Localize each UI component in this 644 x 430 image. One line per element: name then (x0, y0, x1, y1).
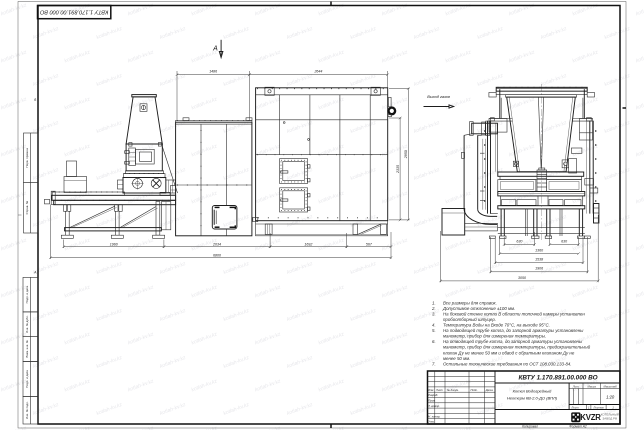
svg-text:4.: 4. (432, 323, 436, 328)
svg-text:пробоотборный штуцер.: пробоотборный штуцер. (443, 317, 496, 322)
svg-text:КВТУ 1.170.891.00.000 ВО: КВТУ 1.170.891.00.000 ВО (518, 375, 597, 382)
svg-text:Справ. №: Справ. № (25, 200, 29, 214)
svg-text:Утв.: Утв. (428, 420, 434, 424)
svg-text:Пров.: Пров. (428, 399, 435, 403)
svg-text:На подводящей трубе котла, до: На подводящей трубе котла, до запорной а… (443, 328, 584, 333)
svg-text:1360: 1360 (535, 249, 543, 253)
svg-text:А: А (212, 46, 218, 53)
svg-text:№ докум.: № докум. (447, 388, 459, 392)
svg-text:На боковой стенке котла В обла: На боковой стенке котла В области топочн… (443, 311, 585, 316)
svg-text:2644: 2644 (313, 70, 322, 74)
svg-text:2.: 2. (431, 306, 436, 311)
svg-text:1960: 1960 (110, 243, 118, 247)
svg-text:3050: 3050 (518, 276, 526, 280)
svg-text:Неотерм КВ-2.0-ДО (ВПЛ): Неотерм КВ-2.0-ДО (ВПЛ) (507, 396, 558, 401)
svg-text:ЗАВОД РФ: ЗАВОД РФ (603, 417, 618, 421)
svg-text:Остальные технические требован: Остальные технические требования по ОСТ … (443, 361, 572, 366)
svg-text:1.: 1. (432, 300, 436, 305)
svg-text:2034: 2034 (212, 243, 221, 247)
svg-text:1692: 1692 (304, 243, 312, 247)
svg-text:Все размеры для справок.: Все размеры для справок. (443, 300, 497, 305)
svg-text:Подп.: Подп. (471, 388, 478, 392)
svg-text:КВТУ 1.170.891.00.000 ВО: КВТУ 1.170.891.00.000 ВО (39, 9, 108, 15)
svg-text:Взам. инв. №: Взам. инв. № (25, 340, 29, 357)
svg-text:Масштаб: Масштаб (603, 384, 616, 388)
svg-text:Дата: Дата (485, 388, 494, 392)
svg-text:KVZR: KVZR (580, 413, 601, 422)
svg-text:Температура Воды на Входе 70°С: Температура Воды на Входе 70°С, на выход… (443, 323, 550, 328)
svg-text:1906: 1906 (535, 267, 543, 271)
svg-text:Масса: Масса (588, 384, 597, 388)
svg-text:манометр, прибор для измерения: манометр, прибор для измерения температу… (443, 334, 546, 339)
svg-text:567: 567 (366, 243, 373, 247)
svg-text:630: 630 (516, 239, 522, 243)
svg-text:Формат А2: Формат А2 (569, 424, 587, 428)
svg-text:Допустимое отклонение ±100 мм.: Допустимое отклонение ±100 мм. (442, 306, 515, 311)
svg-text:Изм: Изм (428, 388, 433, 392)
svg-text:манометр, прибор для измерения: манометр, прибор для измерения температу… (443, 345, 591, 350)
svg-text:клапан Ду не менее 50 мм и обв: клапан Ду не менее 50 мм и обвод с обрат… (443, 350, 575, 355)
svg-text:Листов: Листов (592, 406, 604, 410)
svg-text:7.: 7. (432, 361, 436, 366)
svg-text:6800: 6800 (213, 254, 221, 258)
svg-text:6.: 6. (432, 339, 436, 344)
svg-text:1486: 1486 (209, 70, 217, 74)
svg-text:Копировал: Копировал (522, 424, 538, 428)
svg-text:Подп. и дата: Подп. и дата (25, 370, 29, 388)
svg-text:Подп. и дата: Подп. и дата (25, 285, 29, 303)
svg-text:Котел Водогрейный: Котел Водогрейный (513, 389, 552, 394)
svg-text:Лист: Лист (435, 388, 444, 392)
svg-text:1:20: 1:20 (606, 394, 615, 399)
svg-text:1538: 1538 (535, 258, 543, 262)
svg-text:б: б (34, 98, 36, 102)
svg-text:Перв. примен.: Перв. примен. (25, 147, 29, 167)
svg-text:2950: 2950 (404, 150, 408, 159)
svg-text:Н. контр.: Н. контр. (428, 414, 440, 418)
svg-text:Лит.: Лит. (572, 384, 580, 388)
svg-text:Инв. № дубл.: Инв. № дубл. (25, 315, 29, 333)
svg-text:Разраб.: Разраб. (428, 393, 438, 397)
svg-text:Выход газов: Выход газов (427, 94, 450, 99)
svg-text:3.: 3. (432, 311, 436, 316)
svg-text:5.: 5. (432, 328, 436, 333)
svg-text:На отводящей трубе котла, до з: На отводящей трубе котла, до запорной ар… (443, 339, 583, 344)
svg-text:менее 50 мм.: менее 50 мм. (443, 356, 470, 361)
svg-text:630: 630 (561, 239, 567, 243)
svg-text:Лист: Лист (570, 406, 579, 410)
svg-text:Инв. № подл.: Инв. № подл. (25, 401, 29, 419)
svg-text:Т. контр.: Т. контр. (428, 404, 440, 408)
svg-text:2335: 2335 (396, 165, 400, 174)
